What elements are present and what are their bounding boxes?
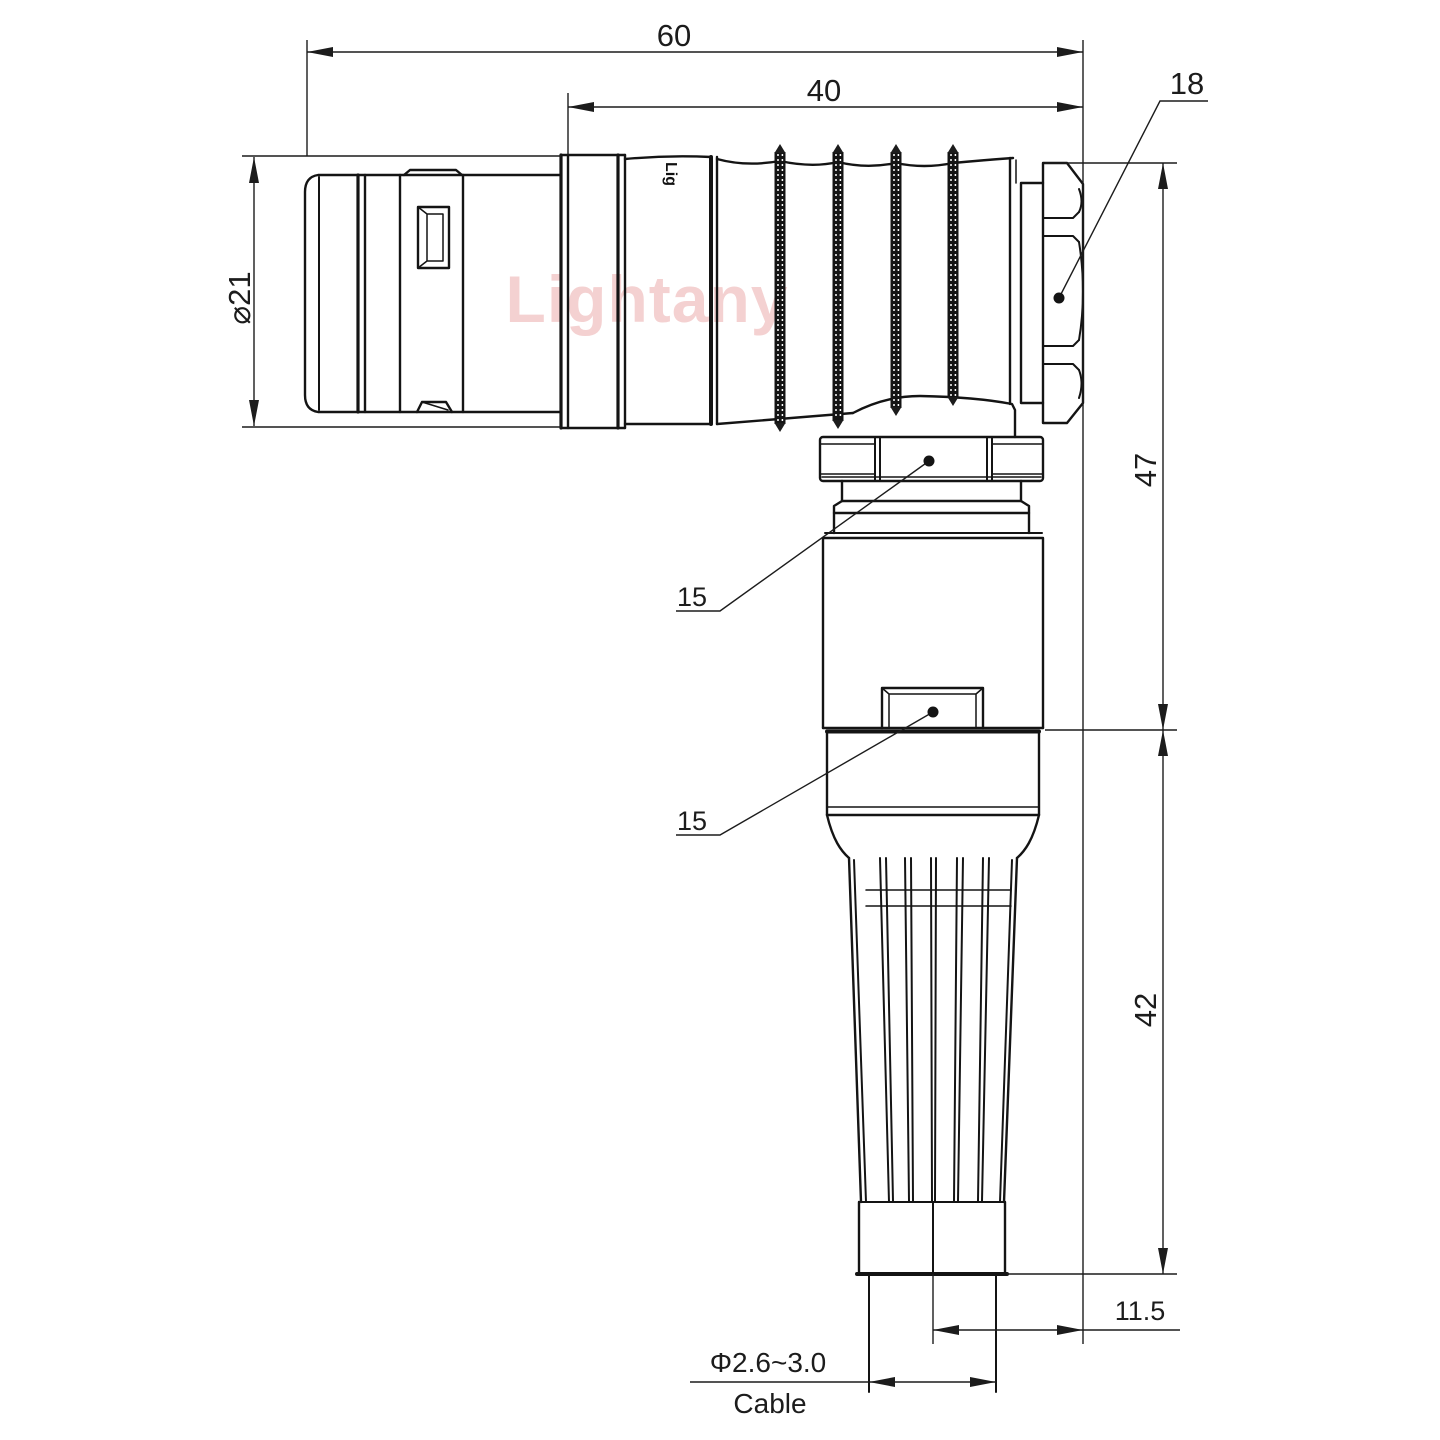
dimension-15-body: 15 <box>676 707 939 837</box>
dimension-11-5: 11.5 <box>933 1274 1180 1344</box>
elbow-body <box>823 533 1043 815</box>
brand-print: Lig <box>662 162 679 186</box>
dimension-42: 42 <box>1007 730 1177 1274</box>
dim-60-label: 60 <box>657 18 691 53</box>
technical-drawing-page: Lightany Lig <box>0 0 1440 1440</box>
dim-11-5-label: 11.5 <box>1115 1296 1166 1326</box>
dim-15-body-label: 15 <box>677 806 707 836</box>
dimension-cable: Φ2.6~3.0 Cable <box>690 1347 996 1419</box>
dim-dia21-label: ⌀21 <box>222 271 257 324</box>
cable-boot <box>857 1202 1007 1274</box>
knurl-band <box>891 144 902 416</box>
dim-15-coupling-label: 15 <box>677 582 707 612</box>
rear-collar-ring <box>1021 183 1043 403</box>
strain-relief-cone <box>827 815 1039 1202</box>
connector-drawing: Lightany Lig <box>0 0 1440 1440</box>
knurl-band <box>948 144 959 406</box>
dim-40-label: 40 <box>807 73 841 108</box>
dim-18-label: 18 <box>1170 66 1204 101</box>
dimension-40: 40 <box>568 73 1083 155</box>
dim-cable-diameter-label: Φ2.6~3.0 <box>710 1347 827 1378</box>
elbow-neck <box>834 481 1029 533</box>
knurl-band <box>833 144 844 429</box>
watermark-text: Lightany <box>506 262 789 336</box>
knurl-band <box>775 144 786 432</box>
dimension-18-leader: 18 <box>1054 66 1209 304</box>
dim-42-label: 42 <box>1128 993 1163 1027</box>
dimension-47: 47 <box>1045 163 1177 730</box>
latch-window <box>418 207 449 268</box>
rear-hex-nut <box>1043 163 1083 423</box>
dim-cable-word-label: Cable <box>733 1388 806 1419</box>
dim-47-label: 47 <box>1128 453 1163 487</box>
dimension-60: 60 <box>307 18 1083 1344</box>
